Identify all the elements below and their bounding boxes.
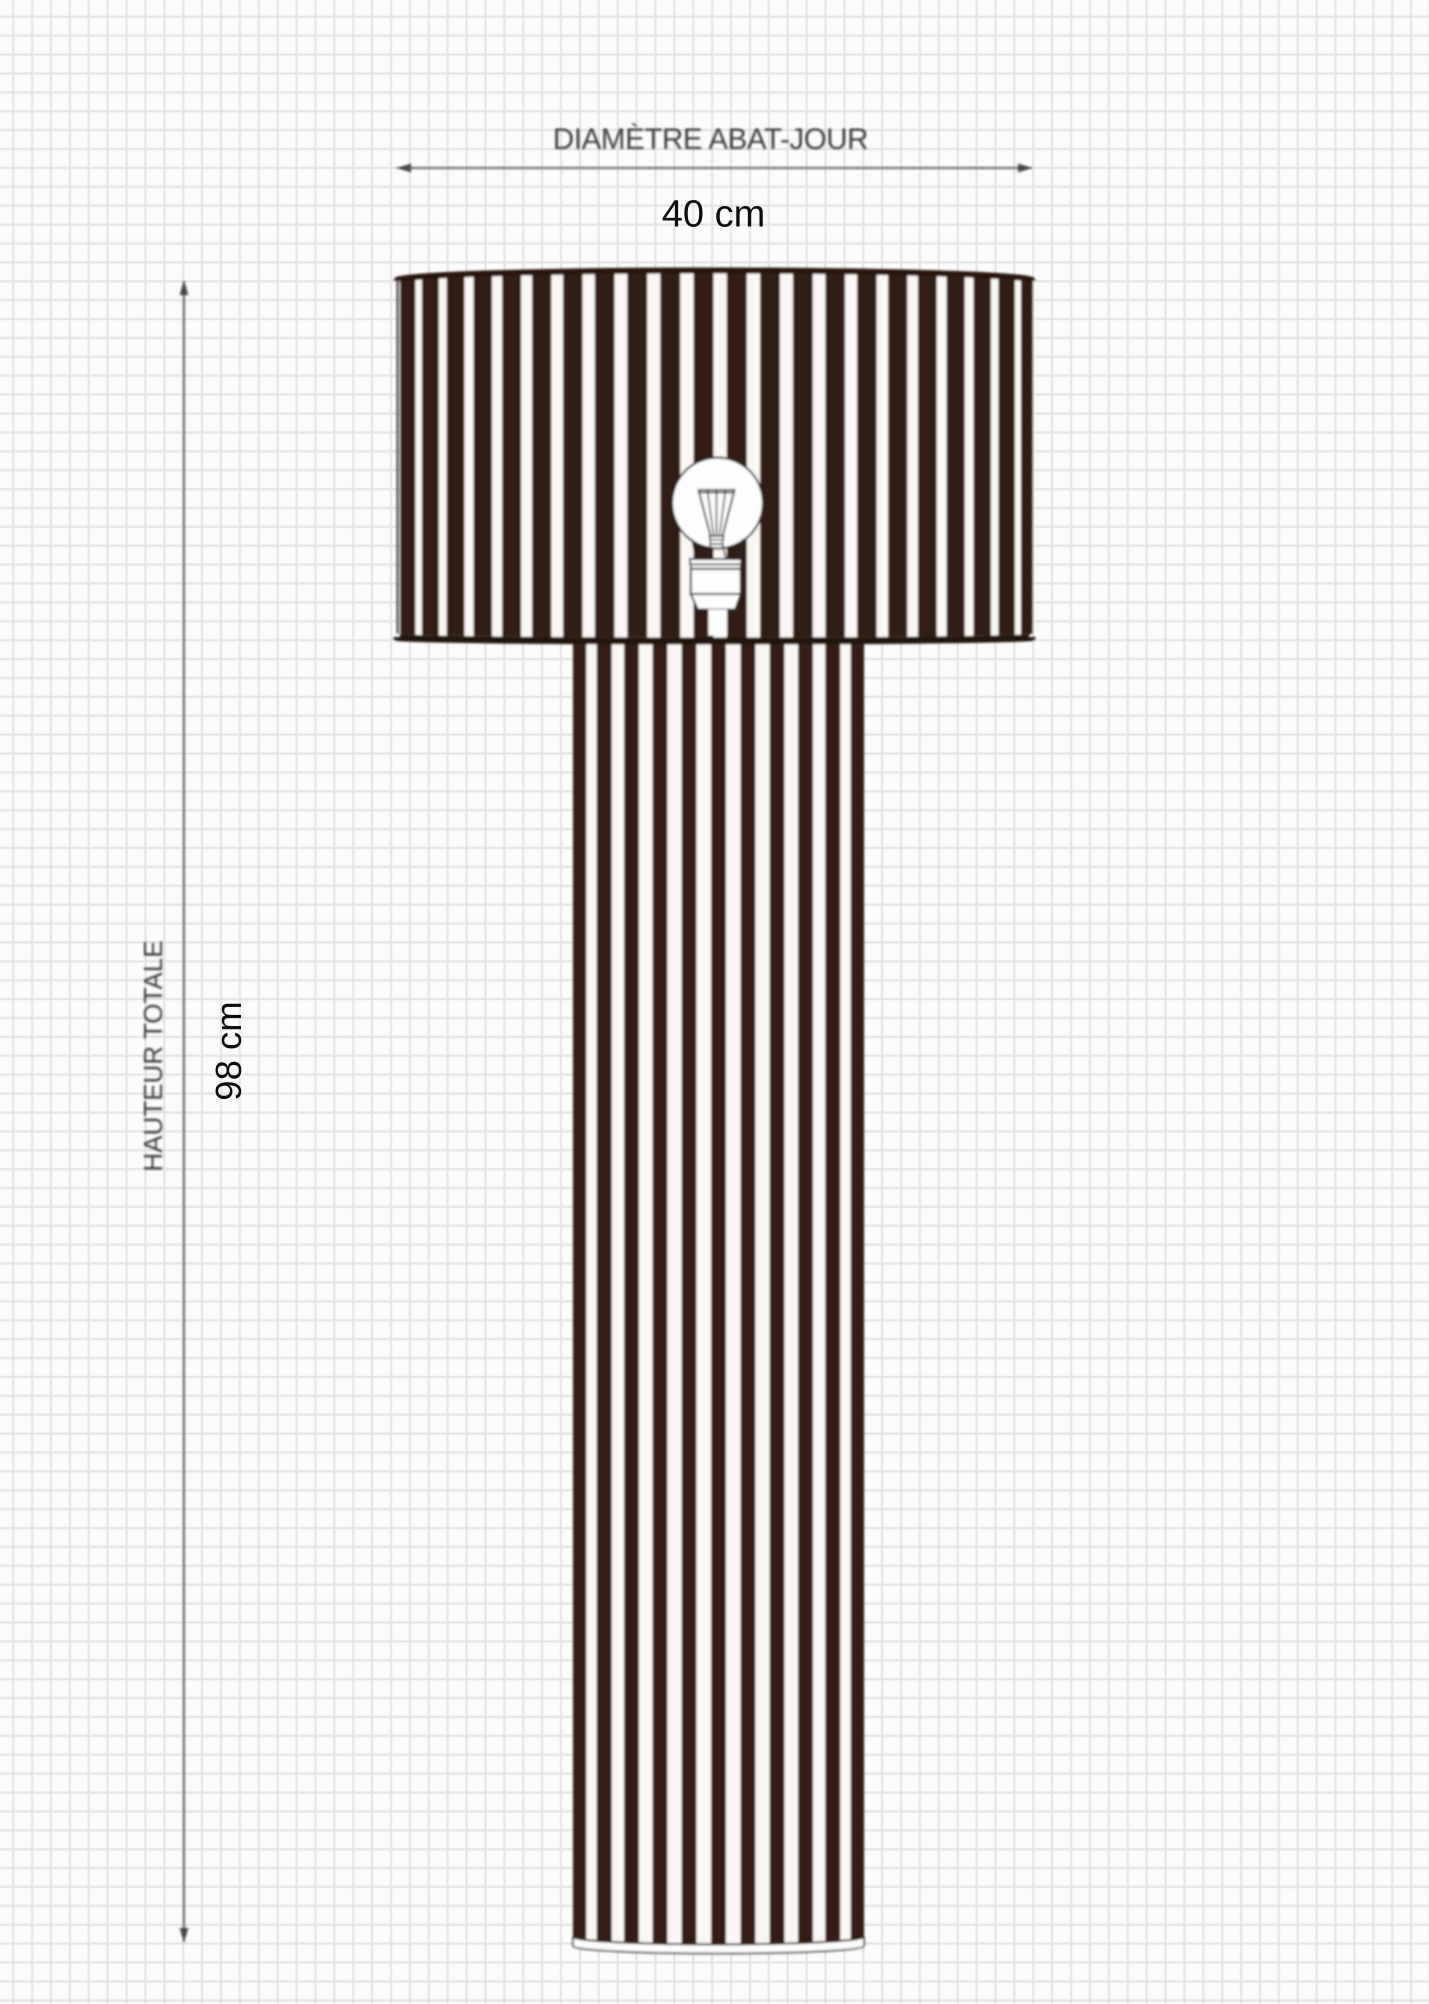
- svg-text:40 cm: 40 cm: [662, 194, 765, 236]
- svg-text:DIAMÈTRE ABAT-JOUR: DIAMÈTRE ABAT-JOUR: [553, 123, 868, 156]
- svg-text:98 cm: 98 cm: [208, 1001, 249, 1100]
- svg-text:HAUTEUR TOTALE: HAUTEUR TOTALE: [138, 940, 168, 1171]
